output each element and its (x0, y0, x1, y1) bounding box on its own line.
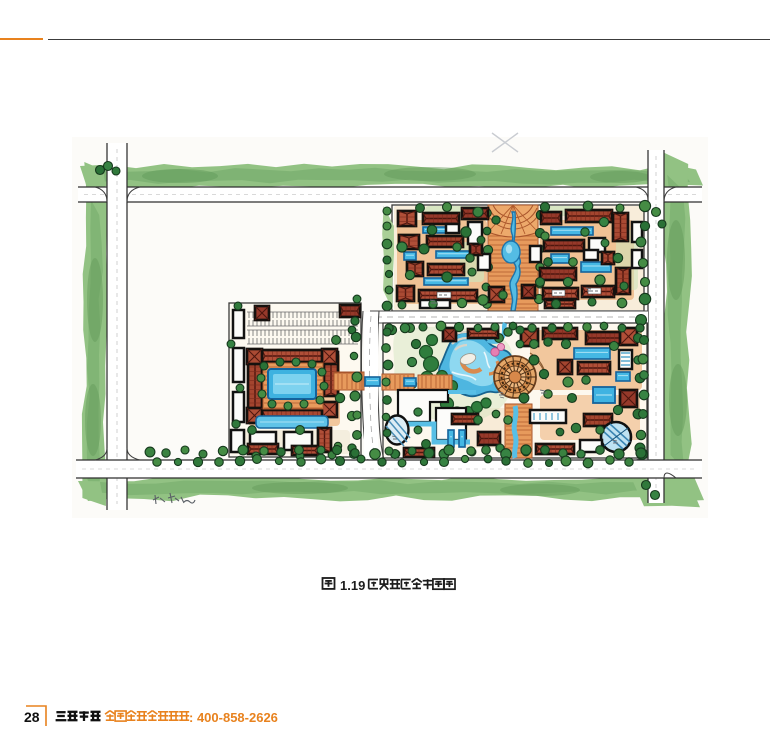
svg-text:: 400-858-2626: : 400-858-2626 (189, 710, 278, 725)
svg-text:28: 28 (24, 709, 40, 725)
svg-text:1.19: 1.19 (340, 578, 365, 593)
